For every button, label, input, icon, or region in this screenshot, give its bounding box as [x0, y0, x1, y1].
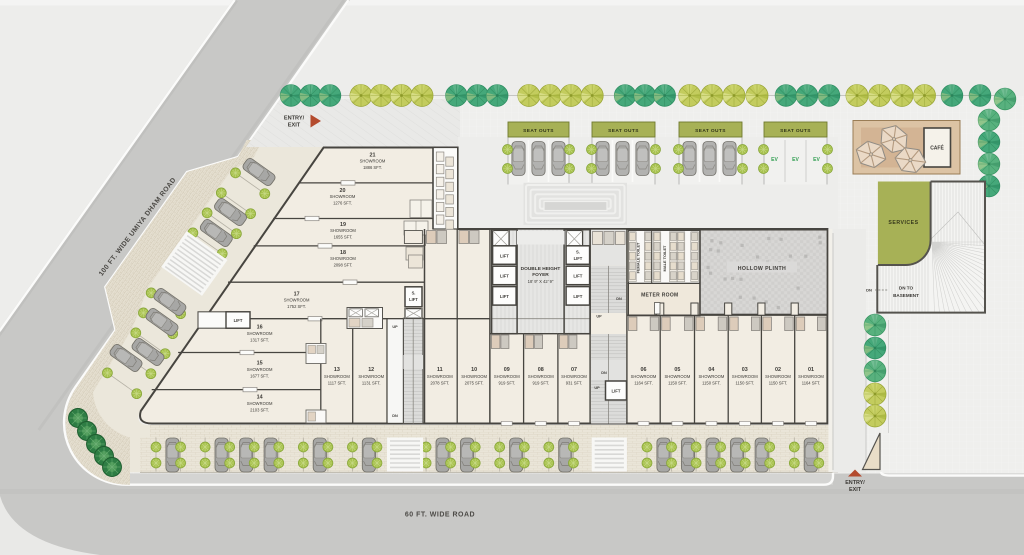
svg-text:SHOWROOM: SHOWROOM [284, 298, 310, 303]
svg-text:SEAT OUTS: SEAT OUTS [523, 128, 554, 134]
svg-text:11: 11 [437, 367, 443, 373]
svg-text:SHOWROOM: SHOWROOM [247, 331, 273, 336]
svg-text:FOYER: FOYER [532, 272, 549, 278]
svg-text:S.: S. [412, 291, 416, 296]
svg-text:DN TO: DN TO [899, 286, 914, 291]
svg-text:01: 01 [808, 367, 814, 373]
svg-text:09: 09 [504, 367, 510, 373]
svg-text:2078 SFT.: 2078 SFT. [430, 381, 449, 386]
svg-text:10: 10 [471, 367, 477, 373]
svg-text:1677 SFT.: 1677 SFT. [250, 373, 269, 378]
svg-text:SHOWROOM: SHOWROOM [494, 374, 520, 379]
svg-text:UP: UP [392, 325, 398, 329]
svg-text:07: 07 [571, 367, 577, 373]
svg-text:DN: DN [392, 414, 398, 418]
svg-text:LIFT: LIFT [573, 274, 582, 279]
svg-text:SERVICES: SERVICES [888, 220, 918, 226]
svg-text:CAFÉ: CAFÉ [930, 144, 944, 152]
svg-text:17: 17 [294, 292, 300, 298]
svg-text:ENTRY/: ENTRY/ [284, 116, 305, 122]
svg-text:SHOWROOM: SHOWROOM [461, 374, 487, 379]
svg-text:HOLLOW PLINTH: HOLLOW PLINTH [738, 266, 786, 272]
svg-text:UP: UP [596, 315, 602, 319]
svg-text:SHOWROOM: SHOWROOM [528, 374, 554, 379]
svg-text:1150 SFT.: 1150 SFT. [702, 381, 721, 386]
svg-text:931 SFT.: 931 SFT. [566, 381, 583, 386]
svg-text:EV: EV [792, 157, 799, 163]
svg-text:FEMALE TOILET: FEMALE TOILET [636, 242, 641, 273]
svg-text:21: 21 [370, 153, 376, 159]
svg-text:EXIT: EXIT [288, 123, 301, 129]
svg-text:DN: DN [616, 297, 622, 301]
svg-text:16: 16 [257, 325, 263, 331]
svg-text:LIFT: LIFT [500, 294, 509, 299]
svg-text:12: 12 [368, 367, 374, 373]
svg-text:SHOWROOM: SHOWROOM [765, 374, 791, 379]
svg-text:SHOWROOM: SHOWROOM [665, 374, 691, 379]
svg-text:08: 08 [538, 367, 544, 373]
svg-text:SHOWROOM: SHOWROOM [330, 194, 356, 199]
svg-text:1150 SFT.: 1150 SFT. [668, 381, 687, 386]
svg-text:LIFT: LIFT [573, 294, 582, 299]
svg-text:1150 SFT.: 1150 SFT. [736, 381, 755, 386]
svg-text:LIFT: LIFT [611, 389, 620, 394]
svg-text:2075 SFT.: 2075 SFT. [465, 381, 484, 386]
svg-text:LIFT: LIFT [500, 253, 509, 258]
svg-text:05: 05 [674, 367, 680, 373]
svg-text:LIFT: LIFT [574, 256, 583, 261]
svg-text:13: 13 [334, 367, 340, 373]
svg-text:02: 02 [775, 367, 781, 373]
svg-text:06: 06 [641, 367, 647, 373]
svg-text:ENTRY/: ENTRY/ [845, 480, 865, 486]
svg-text:MALE TOILET: MALE TOILET [662, 245, 667, 271]
svg-text:1317 SFT.: 1317 SFT. [250, 338, 269, 343]
svg-text:SHOWROOM: SHOWROOM [631, 374, 657, 379]
svg-text:19: 19 [340, 222, 346, 228]
svg-text:SEAT OUTS: SEAT OUTS [780, 128, 811, 134]
svg-text:14: 14 [257, 394, 263, 400]
svg-text:SHOWROOM: SHOWROOM [358, 374, 384, 379]
svg-text:SHOWROOM: SHOWROOM [330, 256, 356, 261]
svg-text:BASEMENT: BASEMENT [893, 293, 919, 298]
svg-text:SHOWROOM: SHOWROOM [732, 374, 758, 379]
svg-text:18’ 9” X 42’ 9”: 18’ 9” X 42’ 9” [528, 279, 554, 284]
svg-text:S.: S. [576, 250, 580, 255]
svg-text:1752 SFT.: 1752 SFT. [287, 304, 306, 309]
svg-text:UP: UP [594, 386, 600, 390]
svg-text:2098 SFT.: 2098 SFT. [334, 262, 353, 267]
svg-text:1150 SFT.: 1150 SFT. [769, 381, 788, 386]
svg-text:SHOWROOM: SHOWROOM [324, 374, 350, 379]
svg-text:60 FT. WIDE ROAD: 60 FT. WIDE ROAD [405, 512, 475, 519]
svg-text:SEAT OUTS: SEAT OUTS [695, 128, 726, 134]
svg-text:919 SFT.: 919 SFT. [499, 381, 516, 386]
svg-text:METER ROOM: METER ROOM [641, 293, 678, 299]
svg-text:04: 04 [708, 367, 714, 373]
svg-text:1886 SFT.: 1886 SFT. [363, 165, 382, 170]
svg-text:1117 SFT.: 1117 SFT. [328, 381, 346, 386]
svg-text:1131 SFT.: 1131 SFT. [362, 381, 381, 386]
svg-text:EV: EV [813, 157, 820, 163]
svg-text:SEAT OUTS: SEAT OUTS [608, 128, 639, 134]
svg-text:SHOWROOM: SHOWROOM [699, 374, 725, 379]
svg-text:20: 20 [340, 188, 346, 194]
svg-text:SHOWROOM: SHOWROOM [561, 374, 587, 379]
svg-text:LIFT: LIFT [500, 274, 509, 279]
svg-text:SHOWROOM: SHOWROOM [247, 367, 273, 372]
svg-text:1276 SFT.: 1276 SFT. [333, 200, 352, 205]
svg-text:DN: DN [866, 288, 872, 293]
svg-text:919 SFT.: 919 SFT. [533, 381, 550, 386]
svg-text:LIFT: LIFT [234, 318, 243, 323]
svg-text:SHOWROOM: SHOWROOM [798, 374, 824, 379]
svg-text:SHOWROOM: SHOWROOM [360, 159, 386, 164]
svg-text:03: 03 [742, 367, 748, 373]
svg-text:SHOWROOM: SHOWROOM [247, 401, 273, 406]
svg-text:15: 15 [257, 360, 263, 366]
svg-text:DOUBLE HEIGHT: DOUBLE HEIGHT [521, 266, 561, 272]
svg-text:1164 SFT.: 1164 SFT. [634, 381, 653, 386]
svg-text:EV: EV [771, 157, 778, 163]
svg-text:SHOWROOM: SHOWROOM [330, 228, 356, 233]
svg-text:EXIT: EXIT [849, 487, 862, 493]
svg-text:2103 SFT.: 2103 SFT. [250, 407, 269, 412]
svg-text:1655 SFT.: 1655 SFT. [334, 234, 353, 239]
svg-text:1164 SFT.: 1164 SFT. [802, 381, 821, 386]
svg-text:DN: DN [601, 371, 607, 375]
svg-text:LIFT: LIFT [409, 297, 418, 302]
svg-text:SHOWROOM: SHOWROOM [427, 374, 453, 379]
svg-text:18: 18 [340, 250, 346, 256]
